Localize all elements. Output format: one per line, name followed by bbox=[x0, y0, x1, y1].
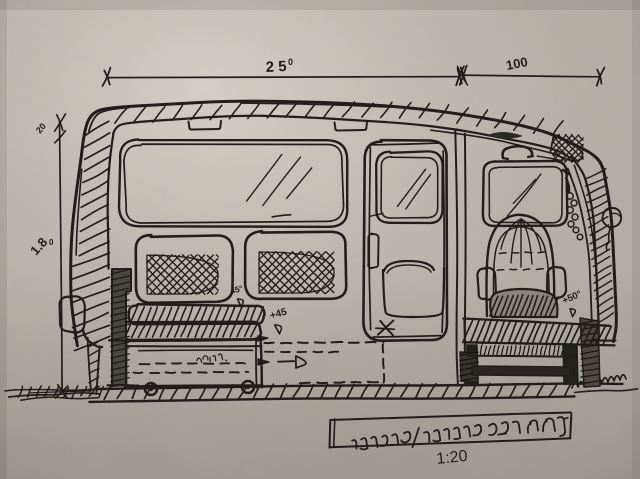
svg-text:0: 0 bbox=[49, 238, 54, 247]
svg-text:1:20: 1:20 bbox=[436, 448, 469, 468]
svg-text:0: 0 bbox=[288, 57, 293, 67]
svg-text:2 5: 2 5 bbox=[265, 58, 287, 76]
